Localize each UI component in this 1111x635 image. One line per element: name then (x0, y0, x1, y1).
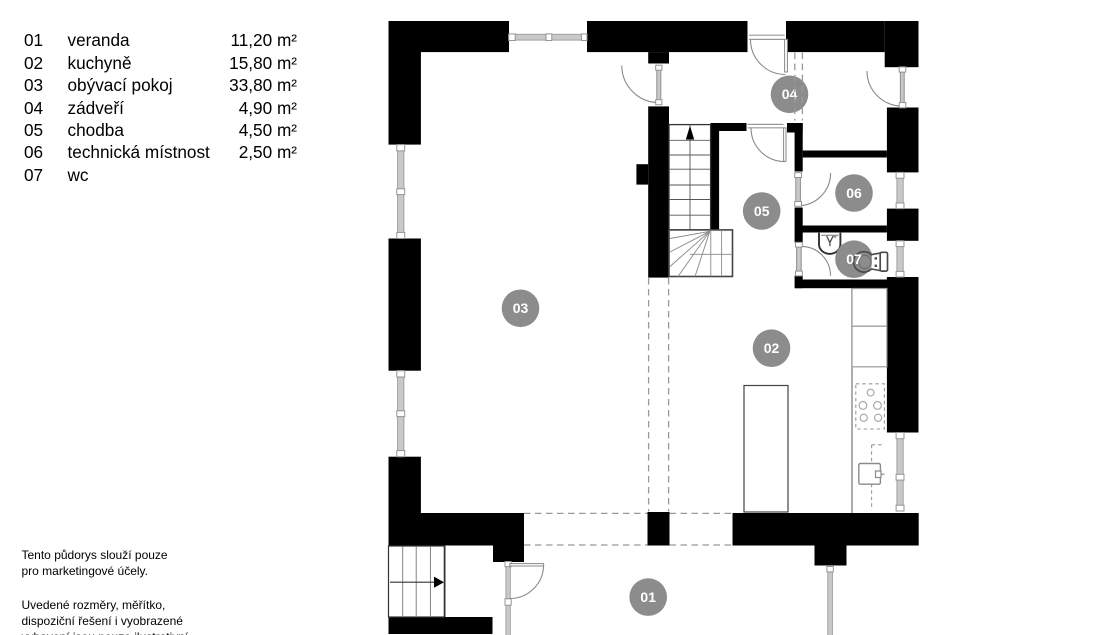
svg-text:03: 03 (513, 300, 529, 316)
svg-text:07: 07 (846, 251, 862, 267)
svg-text:01: 01 (640, 589, 656, 605)
svg-text:05: 05 (754, 203, 770, 219)
svg-text:02: 02 (764, 340, 780, 356)
svg-text:06: 06 (846, 185, 862, 201)
